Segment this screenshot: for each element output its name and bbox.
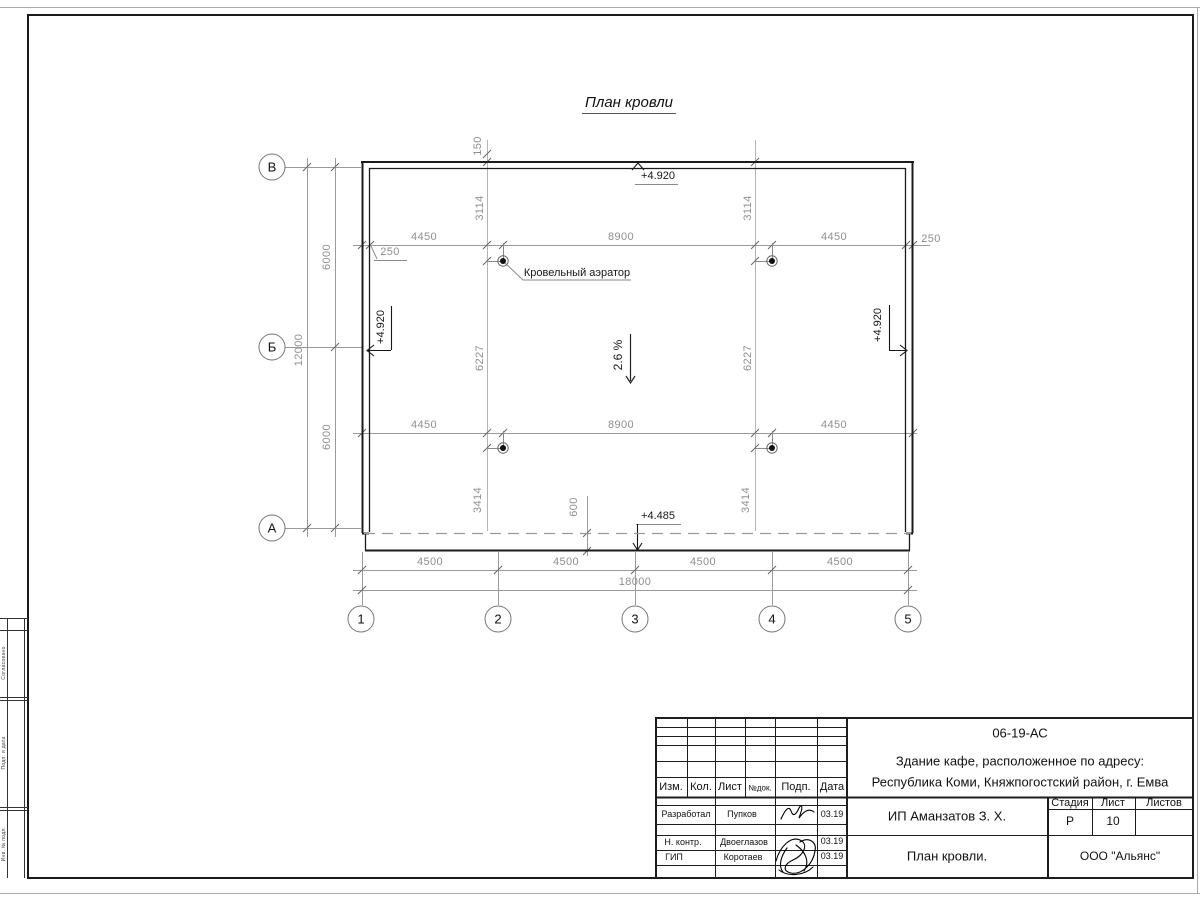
dim-col-spacing-1: 4500 [417, 556, 443, 568]
slope-arrow [626, 334, 635, 383]
dim-col-spacing-4: 4500 [827, 556, 853, 568]
row-control-role: Н. контр. [664, 837, 701, 847]
drawing-sheet: План кровли Согласовано Подп. и дата Инв… [0, 0, 1200, 900]
object-name-line1: Здание кафе, расположенное по адресу: [896, 754, 1144, 769]
margin-label-sign-date: Подп. и дата [1, 736, 7, 769]
dim-offset-right: 250 [921, 233, 941, 245]
listov-header: Листов [1146, 797, 1182, 809]
client-name: ИП Аманзатов З. Х. [888, 809, 1006, 824]
stage-value: Р [1066, 814, 1074, 828]
slope-label: 2.6 % [611, 340, 625, 371]
dim-v-bottom-left: 3414 [472, 487, 484, 513]
row-developer-name: Пупков [727, 809, 757, 819]
margin-label-inv-no: Инв. № подл. [1, 827, 7, 862]
sheet-no-value: 10 [1106, 814, 1119, 828]
margin-label-agreed: Согласовано [1, 646, 7, 679]
dim-eave-width: 600 [568, 497, 580, 517]
dim-row-spacing-2: 6000 [321, 424, 333, 450]
row-developer-date: 03.19 [821, 809, 844, 819]
header-list: Лист [718, 781, 742, 793]
elevation-eave-arrow [633, 524, 642, 550]
header-kol: Кол. [690, 781, 712, 793]
axis-col-3: 3 [631, 612, 638, 627]
roof-outline [361, 161, 914, 551]
dim-v-bottom-right: 3414 [740, 487, 752, 513]
elevation-right-label: +4.920 [872, 308, 884, 342]
row-control-date: 03.19 [821, 836, 844, 846]
elevation-top-label: +4.920 [641, 170, 675, 182]
axis-row-a: А [268, 521, 277, 536]
dim-col-spacing-3: 4500 [690, 556, 716, 568]
axis-col-1: 1 [357, 612, 364, 627]
dim-aerator-bottom-1: 4450 [411, 419, 437, 431]
dim-aerator-top-1: 4450 [411, 231, 437, 243]
page-title: План кровли [582, 94, 676, 114]
dim-aerator-bottom-3: 4450 [821, 419, 847, 431]
construction-lines [488, 140, 756, 531]
header-izm: Изм. [659, 781, 683, 793]
axis-col-5: 5 [904, 612, 911, 627]
roof-aerator-label: Кровельный аэратор [524, 267, 630, 279]
header-data: Дата [820, 781, 844, 793]
elevation-left-label: +4.920 [375, 310, 387, 344]
header-podp: Подп. [781, 781, 810, 793]
elevation-eave-label: +4.485 [641, 510, 675, 522]
axis-col-4: 4 [768, 612, 775, 627]
signature-scribbles [776, 806, 815, 875]
dim-v-top-right: 3114 [742, 195, 754, 220]
axis-col-2: 2 [494, 612, 501, 627]
dim-v-top-left: 3114 [474, 195, 486, 220]
elevation-marks [367, 163, 907, 550]
dim-offset-left: 250 [380, 246, 400, 258]
row-control-name: Двоеглазов [720, 837, 768, 847]
dim-v-mid-right: 6227 [742, 345, 754, 371]
company-name: ООО "Альянс" [1080, 849, 1160, 863]
dim-aerator-top-2: 8900 [608, 231, 634, 243]
sheet-title-cell: План кровли. [907, 849, 987, 864]
elevation-right-leader [889, 305, 907, 356]
axis-row-b: Б [268, 340, 277, 355]
dim-row-total: 12000 [293, 334, 305, 367]
row-gip-name: Коротаев [724, 852, 763, 862]
list-header: Лист [1101, 797, 1125, 809]
roof-aerator-symbols [498, 256, 777, 453]
signature-control [776, 839, 815, 874]
object-name-line2: Республика Коми, Княжпогостский район, г… [872, 775, 1169, 790]
axis-row-v: В [268, 160, 277, 175]
axis-bubbles [259, 154, 921, 632]
header-doc-no: №док. [748, 784, 771, 793]
row-gip-date: 03.19 [821, 851, 844, 861]
dimension-ticks [303, 150, 917, 594]
dimension-lines [285, 158, 930, 605]
dim-v-mid-left: 6227 [474, 345, 486, 371]
sheet-frame [28, 15, 1193, 878]
dim-overhang-top: 150 [472, 136, 484, 156]
signature-developer [781, 806, 814, 819]
dim-aerator-top-3: 4450 [821, 231, 847, 243]
row-developer-role: Разработал [662, 809, 711, 819]
dim-col-spacing-2: 4500 [553, 556, 579, 568]
dim-row-spacing-1: 6000 [321, 244, 333, 270]
dim-aerator-bottom-2: 8900 [608, 419, 634, 431]
stage-header: Стадия [1051, 797, 1089, 809]
doc-number: 06-19-АС [992, 726, 1047, 741]
row-gip-role: ГИП [665, 852, 683, 862]
dim-col-total: 18000 [619, 576, 652, 588]
